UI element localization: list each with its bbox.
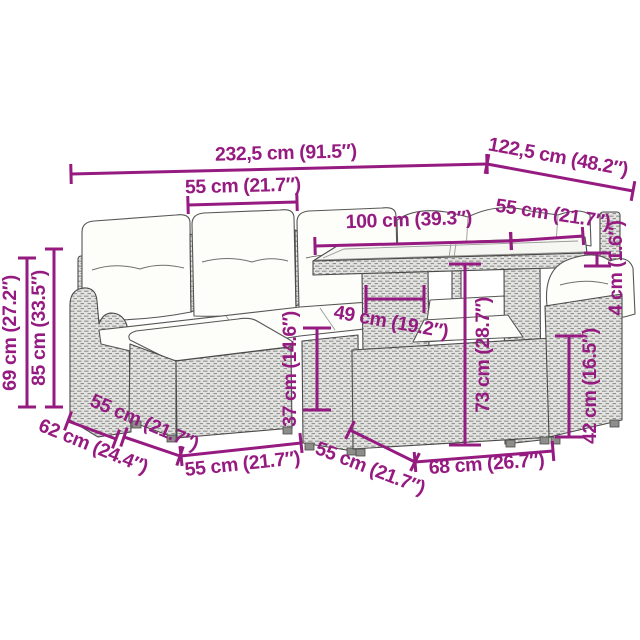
back-cushion-1 — [82, 215, 191, 321]
dimension-diagram: 232,5 cm (91.5″)122,5 cm (48.2″)55 cm (2… — [0, 0, 640, 640]
furniture-diagram-canvas: 232,5 cm (91.5″)122,5 cm (48.2″)55 cm (2… — [0, 0, 640, 640]
dimension-label-back-height: 85 cm (33.5″) — [28, 270, 50, 386]
dimension-label-seat-width: 55 cm (21.7″) — [185, 174, 301, 199]
dimension-label-ottoman-width: 55 cm (21.7″) — [184, 447, 301, 481]
dimension-label-table-length: 100 cm (39.3″) — [345, 207, 472, 233]
dimension-label-arm-height: 69 cm (27.2″) — [0, 275, 21, 391]
dimension-label-chair-seat-height: 42 cm (16.5″) — [579, 328, 601, 444]
dimension-label-tabletop-thickness: 4 cm (1.6″) — [605, 221, 627, 316]
back-cushion-2 — [192, 210, 296, 317]
dimension-back-height: 85 cm (33.5″) — [28, 249, 63, 407]
dimension-overall-depth: 122,5 cm (48.2″) — [485, 133, 635, 200]
dimension-seat-width: 55 cm (21.7″) — [185, 174, 301, 214]
dimension-label-chair-width: 68 cm (26.7″) — [428, 449, 545, 479]
dimension-label-overall-depth: 122,5 cm (48.2″) — [486, 133, 629, 180]
dimension-label-overall-width: 232,5 cm (91.5″) — [215, 140, 357, 165]
middle-ottoman — [302, 335, 359, 455]
dimension-label-table-height: 73 cm (28.7″) — [472, 297, 494, 413]
dimension-chair-width: 68 cm (26.7″) — [414, 441, 554, 479]
dimension-label-ottoman-height: 37 cm (14.6″) — [279, 311, 301, 427]
